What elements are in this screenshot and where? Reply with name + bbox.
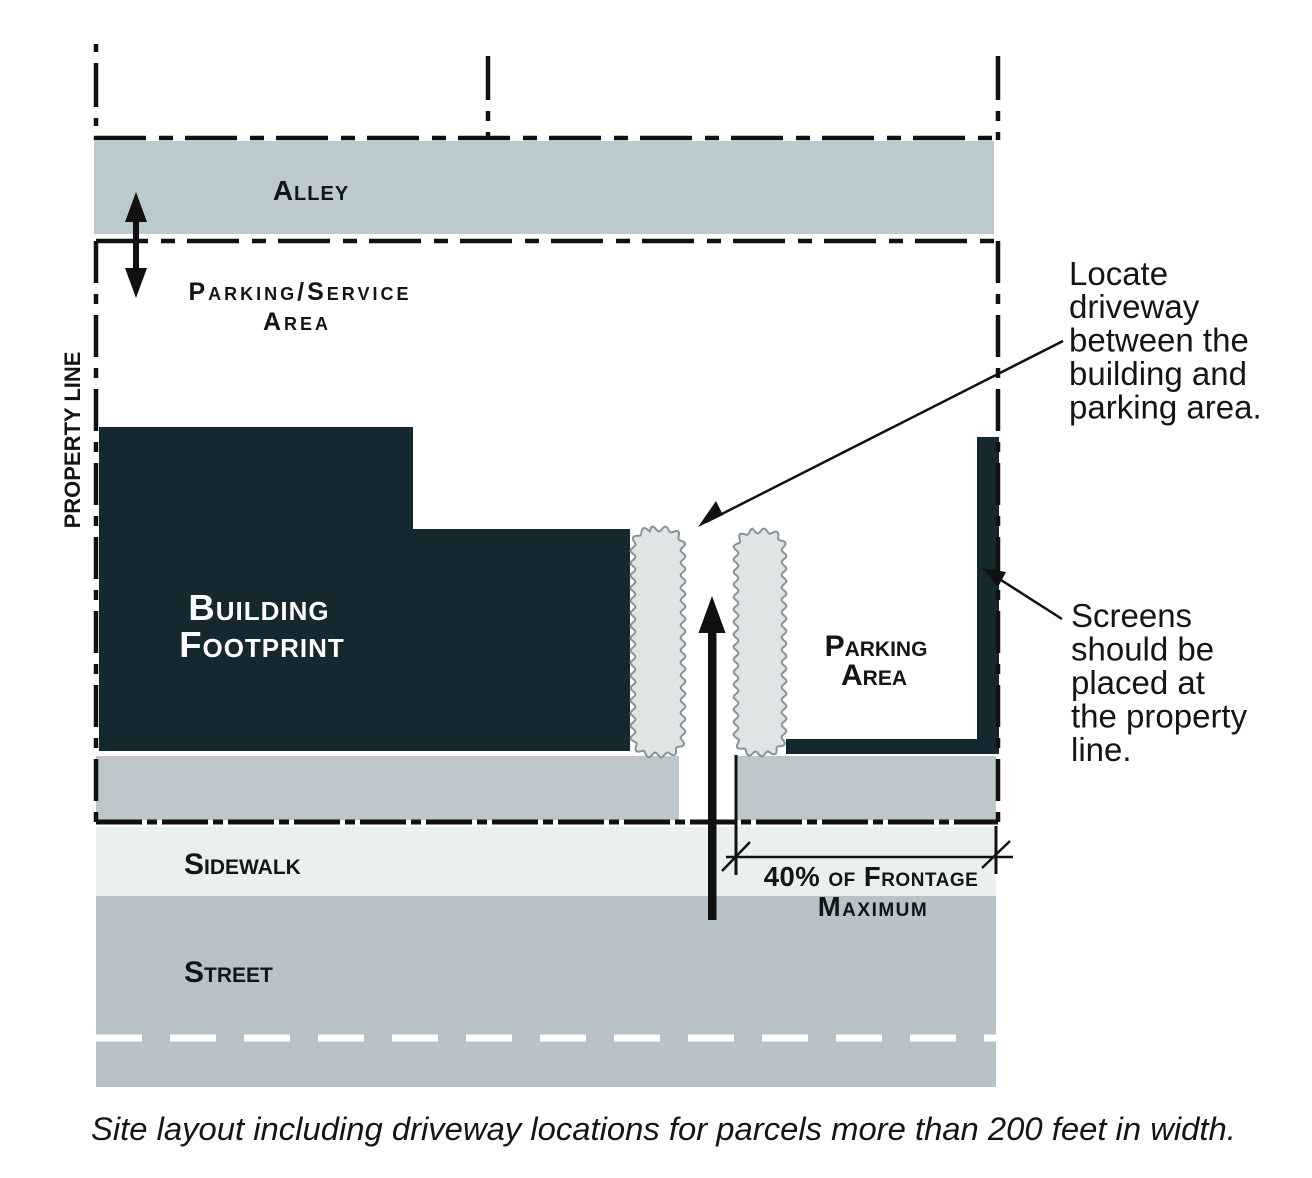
svg-text:PROPERTY LINE: PROPERTY LINE xyxy=(60,352,85,529)
svg-text:Area: Area xyxy=(841,659,907,692)
svg-text:Site layout including driveway: Site layout including driveway locations… xyxy=(91,1110,1236,1147)
svg-text:Sidewalk: Sidewalk xyxy=(184,848,301,881)
svg-text:Locate driveway betwee: Locate driveway between the building and… xyxy=(1069,255,1262,426)
svg-text:Screens should be plac: Screens should be placed at the property… xyxy=(1071,597,1256,768)
svg-text:Maximum: Maximum xyxy=(818,891,928,922)
svg-text:Alley: Alley xyxy=(273,175,349,206)
svg-text:Footprint: Footprint xyxy=(179,624,345,665)
svg-text:Street: Street xyxy=(184,956,273,989)
svg-text:40% of Frontage: 40% of Frontage xyxy=(764,861,979,892)
svg-text:Parking/Service: Parking/Service xyxy=(189,278,412,306)
svg-text:Area: Area xyxy=(263,308,331,336)
svg-text:Building: Building xyxy=(188,587,329,628)
